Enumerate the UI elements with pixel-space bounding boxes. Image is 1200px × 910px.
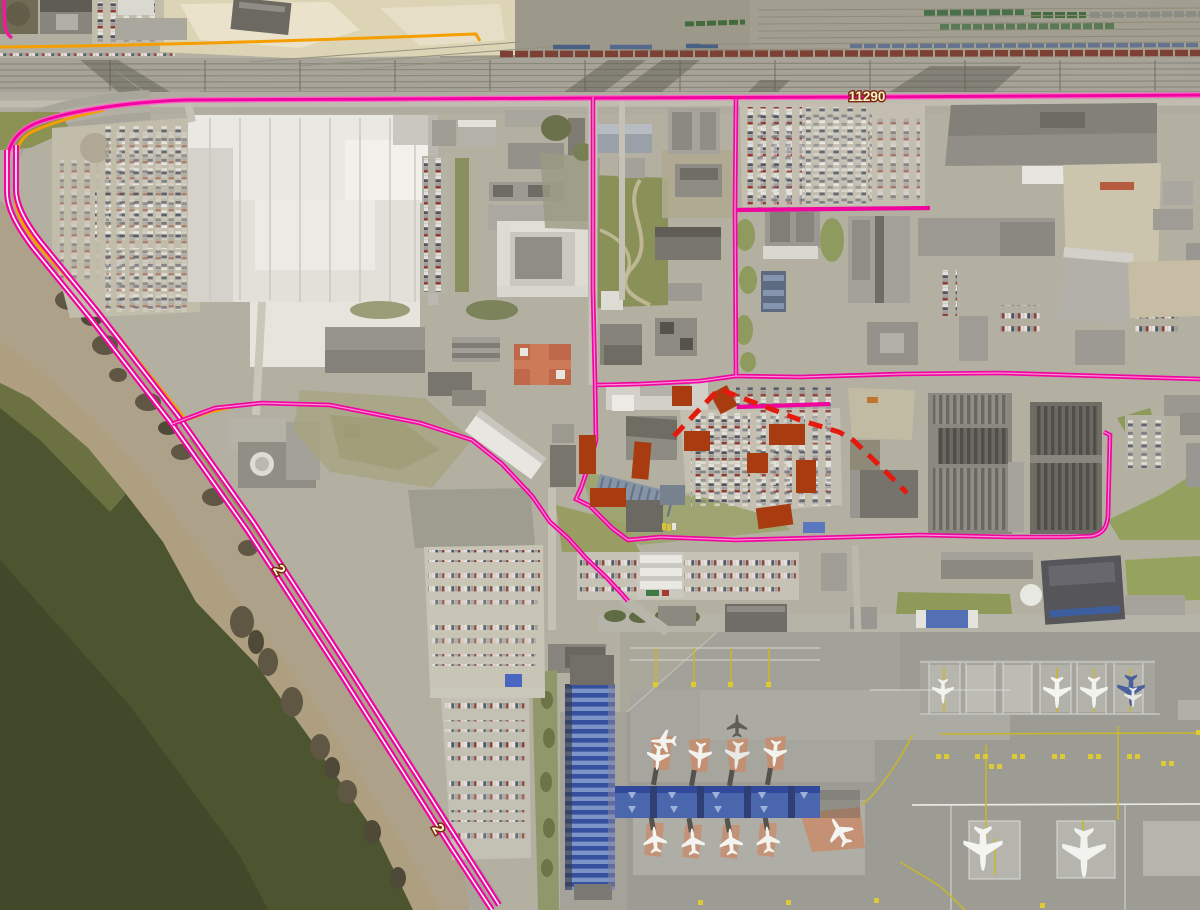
svg-text:11290: 11290 [849,89,886,104]
